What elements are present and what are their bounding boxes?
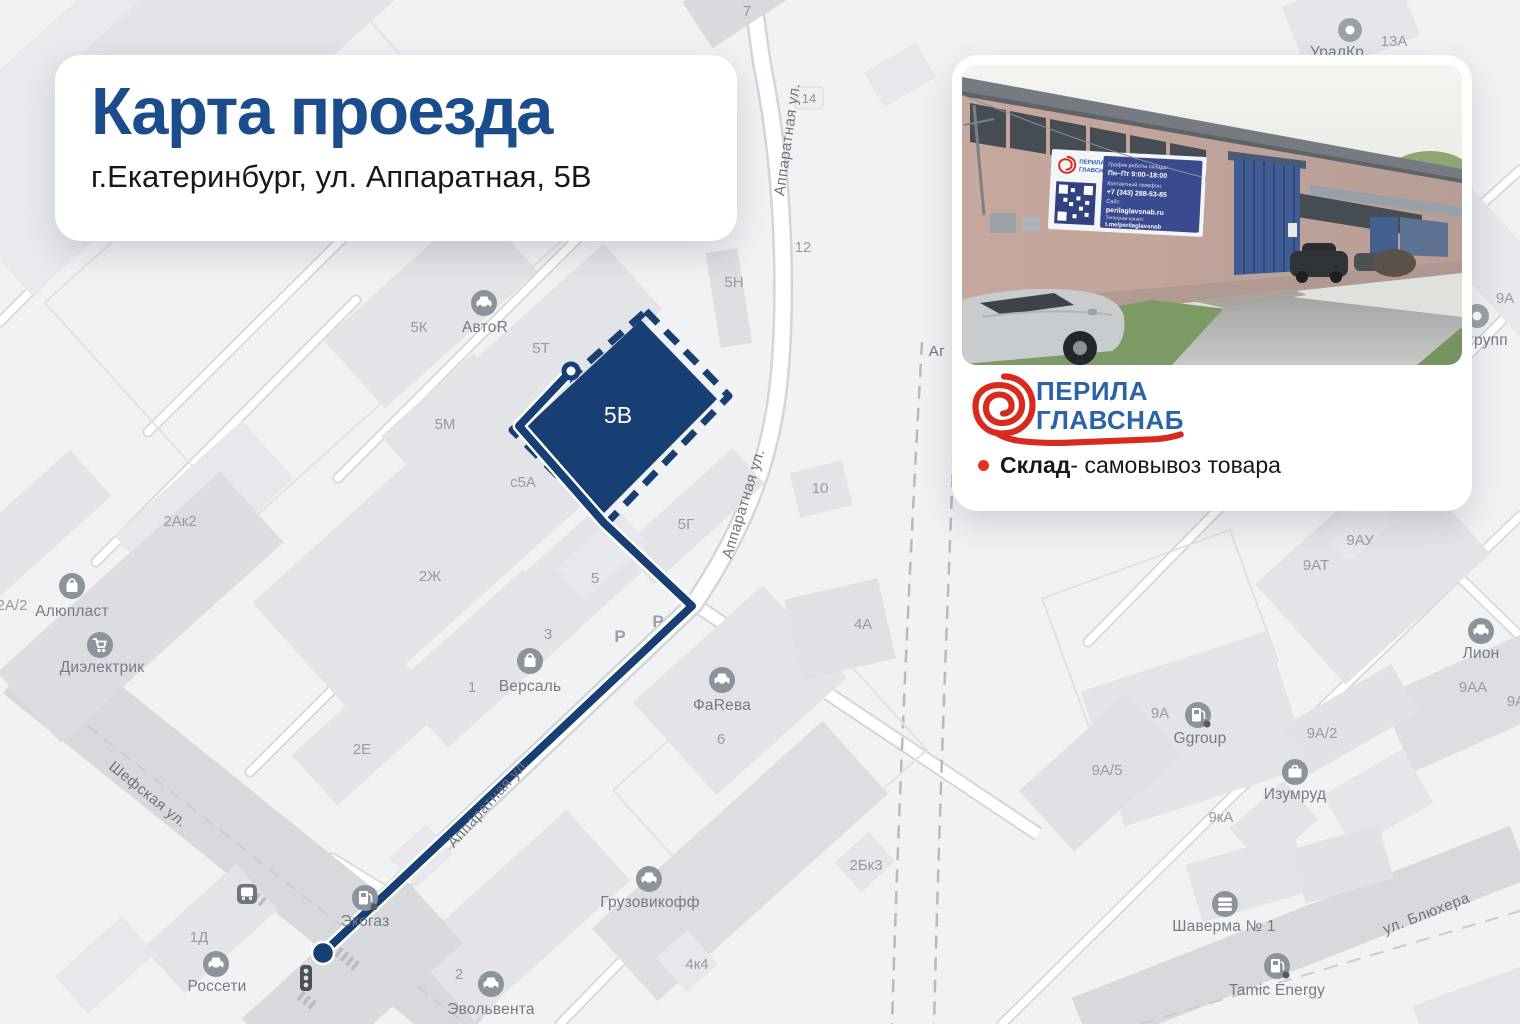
map-label: 9А <box>1507 693 1520 710</box>
map-label: Аг <box>929 343 946 360</box>
map-label: 13А <box>1381 33 1408 50</box>
page-title: Карта проезда <box>91 75 707 149</box>
logo-text-line2: ГЛАВСНАБ <box>1036 405 1184 435</box>
poi-label: Россети <box>187 978 246 995</box>
map-label: 2Ж <box>419 568 441 585</box>
traffic-light-icon <box>300 965 312 991</box>
address-subtitle: г.Екатеринбург, ул. Аппаратная, 5В <box>91 159 707 195</box>
building-entrance-marker <box>564 364 578 378</box>
car-icon <box>1468 618 1494 644</box>
poi-label: Эвольвента <box>447 1001 535 1018</box>
map-label: 9АА <box>1459 679 1487 696</box>
map-label: 5Т <box>532 340 550 357</box>
map-label: 9АТ <box>1303 557 1329 574</box>
poi-label: Алюпласт <box>35 603 109 620</box>
red-bullet-icon <box>978 460 989 471</box>
wall-banner: ПЕРИЛА ГЛАВСНАБ График работы склада: Пн… <box>1048 149 1207 237</box>
map-label: 9кА <box>1209 809 1234 826</box>
map-label: 6 <box>717 731 725 748</box>
svg-text:Сайт:: Сайт: <box>1106 198 1121 206</box>
road <box>1172 297 1462 365</box>
info-card: ПЕРИЛА ГЛАВСНАБ График работы склада: Пн… <box>952 55 1472 511</box>
route-map-flyer: 7 14 12 Аппаратная ул. Аппаратная ул. Ап… <box>0 0 1520 1024</box>
map-label: 10 <box>812 480 829 497</box>
poi-label: Версаль <box>499 678 561 695</box>
map-label: 9А <box>1151 705 1169 722</box>
poi-label: Лион <box>1463 645 1500 662</box>
map-label: 5Н <box>724 274 743 291</box>
map-label: 5М <box>435 416 456 433</box>
poi-circle-icon <box>1338 18 1362 42</box>
poi-label: Ggroup <box>1174 730 1227 747</box>
shopping-bag-icon <box>517 648 543 674</box>
briefcase-icon <box>1282 759 1308 785</box>
poi-label: Диэлектрик <box>60 659 145 676</box>
note-rest: - самовывоз товара <box>1070 452 1281 479</box>
map-label: 2А/2 <box>0 597 27 614</box>
map-label: 12 <box>795 239 812 256</box>
map-label: 9А/2 <box>1307 725 1338 742</box>
map-label: 4к4 <box>685 956 708 973</box>
poi-label: ФаRева <box>693 697 751 714</box>
map-label: 2Бк3 <box>849 857 882 874</box>
map-label: 3 <box>544 626 552 643</box>
logo-text-line1: ПЕРИЛА <box>1036 376 1148 406</box>
map-label: 1 <box>468 679 476 696</box>
poi-label: АвтоR <box>462 319 508 336</box>
parking-label: P <box>652 612 663 631</box>
transit-stop-icon <box>237 884 257 904</box>
map-label: 4А <box>854 616 872 633</box>
route-start-dot <box>312 942 334 964</box>
map-label: с5А <box>510 474 536 491</box>
car-icon <box>636 866 662 892</box>
car-icon <box>478 971 504 997</box>
map-label: 5 <box>591 570 599 587</box>
poi-label: Изумруд <box>1264 786 1326 803</box>
fuel-station-icon <box>1185 702 1211 728</box>
car-icon <box>203 951 229 977</box>
company-logo: ПЕРИЛА ГЛАВСНАБ <box>972 371 1242 446</box>
highlighted-building-label: 5В <box>604 402 632 428</box>
warehouse-note: Склад - самовывоз товара <box>978 452 1462 479</box>
map-label: 9АУ <box>1346 532 1374 549</box>
map-label: 7 <box>743 3 751 20</box>
map-label: 1Д <box>190 929 209 946</box>
car-icon <box>709 667 735 693</box>
warehouse-photo: ПЕРИЛА ГЛАВСНАБ График работы склада: Пн… <box>962 65 1462 365</box>
map-label: 2Е <box>353 741 371 758</box>
parking-label: P <box>614 627 625 646</box>
note-bold: Склад <box>1000 452 1070 479</box>
map-label: 14 <box>802 91 816 106</box>
shopping-bag-icon <box>59 573 85 599</box>
shopping-cart-icon <box>87 632 113 658</box>
map-label: 9А <box>1496 290 1514 307</box>
map-label: 2Ак2 <box>163 513 196 530</box>
warehouse-photo-art: ПЕРИЛА ГЛАВСНАБ График работы склада: Пн… <box>962 65 1462 365</box>
food-icon <box>1212 891 1238 917</box>
poi-label: Грузовикофф <box>600 894 699 911</box>
car-icon <box>471 290 497 316</box>
map-label: 5Г <box>678 516 694 533</box>
map-label: 9А/5 <box>1092 762 1123 779</box>
poi-label: Экогаз <box>341 913 390 930</box>
fuel-station-icon <box>352 885 378 911</box>
fuel-station-icon <box>1264 953 1290 979</box>
map-label: 2 <box>455 966 463 983</box>
map-label: 5К <box>410 319 427 336</box>
map-label: групп <box>1468 332 1508 349</box>
title-card: Карта проезда г.Екатеринбург, ул. Аппара… <box>55 55 737 241</box>
poi-label: Tamic Energy <box>1229 982 1325 999</box>
poi-label: Шаверма № 1 <box>1172 918 1275 935</box>
